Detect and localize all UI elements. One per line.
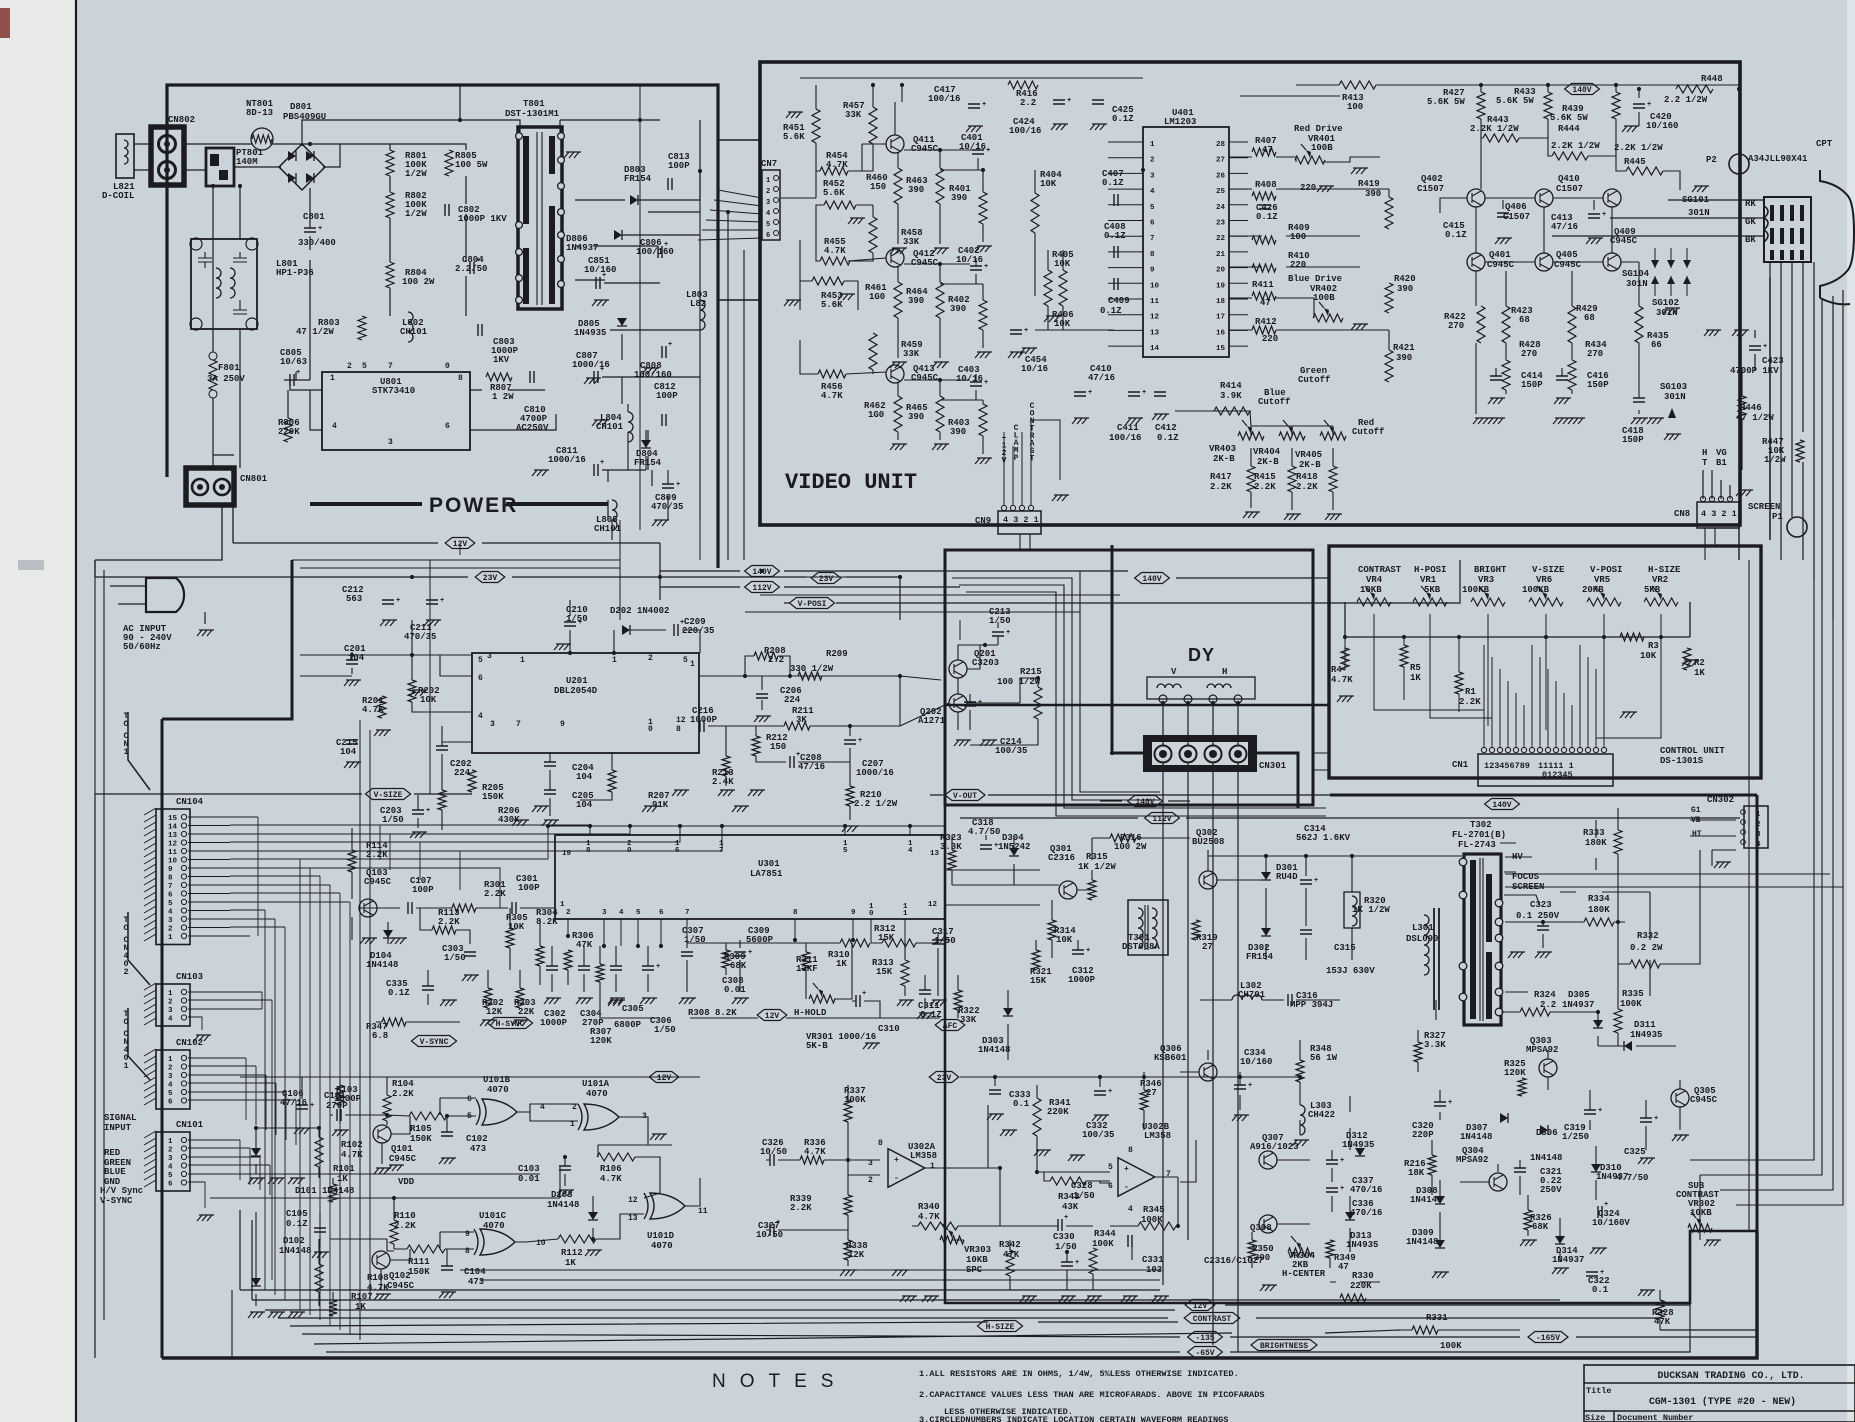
svg-text:140M: 140M — [236, 157, 258, 167]
svg-text:0.1Z: 0.1Z — [1445, 230, 1467, 240]
svg-text:+: + — [986, 147, 990, 155]
svg-text:1/250: 1/250 — [1562, 1132, 1589, 1142]
svg-text:VR6: VR6 — [1536, 575, 1552, 585]
svg-text:1000P: 1000P — [1068, 975, 1096, 985]
svg-text:4: 4 — [168, 1164, 173, 1172]
svg-text:D-COIL: D-COIL — [102, 191, 134, 201]
svg-text:CN802: CN802 — [168, 115, 195, 125]
svg-text:+: + — [318, 225, 322, 233]
svg-text:2.2 1/2W: 2.2 1/2W — [1664, 95, 1708, 105]
svg-text:12V: 12V — [657, 1074, 672, 1083]
svg-text:H-SIZE: H-SIZE — [986, 1323, 1015, 1332]
svg-text:15: 15 — [168, 815, 178, 823]
svg-text:R345: R345 — [1143, 1205, 1165, 1215]
svg-text:C409: C409 — [1108, 296, 1130, 306]
svg-text:C945C: C945C — [911, 258, 939, 268]
svg-text:1: 1 — [719, 840, 724, 848]
svg-text:1: 1 — [123, 1061, 128, 1071]
svg-text:1000P 1KV: 1000P 1KV — [458, 214, 507, 224]
svg-text:6: 6 — [168, 1099, 173, 1107]
svg-text:50/60Hz: 50/60Hz — [123, 642, 161, 652]
svg-text:10/160: 10/160 — [584, 265, 616, 275]
svg-text:5: 5 — [168, 1090, 173, 1098]
svg-text:2.2/50: 2.2/50 — [455, 264, 487, 274]
svg-text:150P: 150P — [1622, 435, 1644, 445]
svg-text:1N4935: 1N4935 — [1342, 1140, 1374, 1150]
svg-text:A1271: A1271 — [918, 716, 946, 726]
svg-text:C412: C412 — [1155, 423, 1177, 433]
svg-text:1/50: 1/50 — [566, 614, 588, 624]
svg-text:47: 47 — [1338, 1262, 1349, 1272]
svg-text:21: 21 — [1216, 251, 1226, 259]
svg-text:R4: R4 — [1331, 665, 1342, 675]
svg-text:1: 1 — [168, 934, 173, 942]
svg-text:330 1/2W: 330 1/2W — [790, 664, 834, 674]
svg-text:43K: 43K — [1062, 1202, 1079, 1212]
svg-text:1N4148: 1N4148 — [547, 1200, 579, 1210]
svg-text:7: 7 — [516, 720, 521, 729]
svg-text:Q102: Q102 — [389, 1271, 411, 1281]
svg-text:H-CENTER: H-CENTER — [1282, 1269, 1326, 1279]
svg-text:R101: R101 — [333, 1164, 355, 1174]
svg-text:Q308: Q308 — [1250, 1223, 1272, 1233]
svg-text:47K: 47K — [1003, 1250, 1020, 1260]
svg-text:1: 1 — [908, 840, 913, 848]
svg-text:4: 4 — [908, 847, 913, 855]
svg-text:MPSA92: MPSA92 — [1456, 1155, 1488, 1165]
svg-text:C330: C330 — [1053, 1232, 1075, 1242]
svg-text:5: 5 — [478, 656, 483, 665]
svg-text:P2: P2 — [1706, 155, 1717, 165]
svg-text:V-SYNC: V-SYNC — [100, 1196, 133, 1206]
svg-text:23V: 23V — [483, 574, 498, 583]
svg-text:U101C: U101C — [479, 1211, 507, 1221]
svg-text:H/V Sync: H/V Sync — [100, 1186, 143, 1196]
svg-text:14: 14 — [168, 824, 178, 832]
svg-text:301N: 301N — [1626, 279, 1648, 289]
svg-text:2: 2 — [766, 188, 770, 196]
svg-text:1K: 1K — [1694, 668, 1705, 678]
svg-text:3K: 3K — [796, 715, 807, 725]
svg-text:140V: 140V — [1135, 798, 1154, 807]
svg-text:P: P — [1014, 454, 1019, 463]
svg-text:390: 390 — [1254, 1253, 1270, 1263]
svg-text:10KB: 10KB — [1690, 1208, 1712, 1218]
svg-text:1: 1 — [168, 1138, 173, 1146]
svg-text:CH422: CH422 — [1308, 1110, 1335, 1120]
svg-text:4.7/50: 4.7/50 — [968, 827, 1000, 837]
svg-text:15: 15 — [1216, 345, 1226, 353]
svg-text:390: 390 — [908, 296, 924, 306]
svg-text:CONTRAST: CONTRAST — [1193, 1315, 1232, 1324]
svg-text:1K: 1K — [565, 1258, 576, 1268]
svg-text:+: + — [1075, 1259, 1079, 1267]
svg-text:Size: Size — [1585, 1413, 1605, 1422]
svg-text:100P: 100P — [668, 161, 690, 171]
svg-text:100/16: 100/16 — [1009, 126, 1041, 136]
svg-text:R340: R340 — [918, 1202, 940, 1212]
svg-text:R1: R1 — [1465, 687, 1476, 697]
svg-text:18K: 18K — [1408, 1168, 1425, 1178]
svg-text:1K: 1K — [337, 1174, 348, 1184]
svg-text:C423: C423 — [1762, 356, 1784, 366]
svg-text:13: 13 — [930, 850, 940, 858]
svg-text:1000P: 1000P — [540, 1018, 568, 1028]
svg-text:HT: HT — [1692, 830, 1702, 839]
svg-text:VR303: VR303 — [964, 1245, 991, 1255]
svg-text:12: 12 — [676, 716, 686, 725]
svg-text:104: 104 — [340, 747, 357, 757]
svg-text:6: 6 — [659, 909, 664, 917]
svg-text:68: 68 — [1584, 313, 1595, 323]
svg-text:+: + — [1086, 947, 1090, 955]
svg-text:0.1Z: 0.1Z — [1104, 231, 1126, 241]
svg-text:10KB: 10KB — [966, 1255, 988, 1265]
svg-text:150K: 150K — [408, 1267, 430, 1277]
svg-text:9: 9 — [168, 866, 173, 874]
svg-text:7: 7 — [1166, 1170, 1171, 1179]
svg-text:V-POSI: V-POSI — [1590, 565, 1622, 575]
svg-text:8: 8 — [458, 374, 463, 383]
svg-text:VR1: VR1 — [1420, 575, 1437, 585]
svg-text:KSB601: KSB601 — [1154, 1053, 1187, 1063]
svg-text:330/400: 330/400 — [298, 238, 336, 248]
svg-text:Title: Title — [1586, 1386, 1612, 1396]
svg-text:+: + — [1340, 1185, 1344, 1193]
svg-text:150K: 150K — [410, 1134, 432, 1144]
svg-text:1N4937: 1N4937 — [1552, 1255, 1584, 1265]
svg-text:CN301: CN301 — [1259, 761, 1287, 771]
svg-text:4.7K: 4.7K — [1331, 675, 1353, 685]
svg-text:CN101: CN101 — [176, 1120, 204, 1130]
svg-text:150P: 150P — [1521, 380, 1543, 390]
svg-text:4: 4 — [619, 909, 624, 917]
svg-text:1/50: 1/50 — [654, 1025, 676, 1035]
svg-text:8: 8 — [1150, 251, 1155, 259]
svg-text:0.01: 0.01 — [724, 985, 746, 995]
svg-text:220: 220 — [1290, 260, 1306, 270]
svg-text:4070: 4070 — [483, 1221, 505, 1231]
svg-text:13: 13 — [1150, 329, 1160, 337]
svg-text:12K: 12K — [848, 1250, 865, 1260]
svg-text:C945C: C945C — [911, 144, 939, 154]
svg-text:2.2K 1/2W: 2.2K 1/2W — [1470, 124, 1519, 134]
svg-text:4: 4 — [478, 712, 483, 721]
svg-text:CN9: CN9 — [975, 516, 991, 526]
svg-text:1: 1 — [168, 1056, 173, 1064]
svg-text:D306: D306 — [1536, 1128, 1558, 1138]
svg-text:G1: G1 — [1691, 806, 1701, 815]
svg-text:5: 5 — [1108, 1163, 1113, 1172]
svg-text:+: + — [894, 1156, 899, 1165]
svg-text:R110: R110 — [394, 1211, 416, 1221]
svg-text:R408: R408 — [1255, 180, 1277, 190]
svg-text:U301: U301 — [758, 859, 780, 869]
svg-text:12V: 12V — [1193, 1302, 1208, 1311]
svg-text:CH701: CH701 — [1238, 990, 1266, 1000]
svg-text:R445: R445 — [1624, 157, 1646, 167]
svg-text:RU4D: RU4D — [1276, 872, 1298, 882]
svg-text:5: 5 — [683, 656, 688, 665]
svg-text:+: + — [858, 737, 862, 745]
svg-text:1/50: 1/50 — [382, 815, 404, 825]
svg-text:+: + — [656, 963, 660, 971]
svg-text:CPT: CPT — [1816, 139, 1833, 149]
svg-text:+: + — [1604, 1201, 1608, 1209]
svg-text:140V: 140V — [1572, 86, 1591, 95]
svg-text:+: + — [668, 341, 672, 349]
svg-text:SIGNAL: SIGNAL — [104, 1113, 136, 1123]
svg-text:+: + — [1108, 1088, 1112, 1096]
svg-text:C2316: C2316 — [1048, 853, 1075, 863]
svg-text:R446: R446 — [1740, 403, 1762, 413]
svg-text:301N: 301N — [1664, 392, 1686, 402]
svg-text:47/16: 47/16 — [1551, 222, 1578, 232]
svg-text:BU2508: BU2508 — [1192, 837, 1224, 847]
svg-text:33K: 33K — [903, 349, 920, 359]
svg-text:2K-B: 2K-B — [1299, 460, 1321, 470]
svg-text:R105: R105 — [410, 1124, 432, 1134]
svg-text:Red Drive: Red Drive — [1294, 124, 1343, 134]
svg-text:10K: 10K — [1054, 259, 1071, 269]
svg-text:3: 3 — [168, 1073, 173, 1081]
svg-text:4.7K: 4.7K — [600, 1174, 622, 1184]
svg-text:6800P: 6800P — [614, 1020, 642, 1030]
svg-text:F801: F801 — [218, 363, 240, 373]
svg-text:+: + — [310, 1102, 314, 1110]
svg-text:6: 6 — [168, 1181, 173, 1189]
svg-text:C945C: C945C — [911, 373, 939, 383]
svg-text:MPP 394J: MPP 394J — [1290, 1000, 1333, 1010]
svg-text:10/50: 10/50 — [760, 1147, 787, 1157]
svg-text:4: 4 — [168, 909, 173, 917]
svg-text:7: 7 — [388, 362, 393, 371]
svg-text:23V: 23V — [819, 575, 834, 584]
svg-text:+: + — [1067, 97, 1071, 105]
svg-text:R334: R334 — [1588, 894, 1610, 904]
svg-text:Q406: Q406 — [1505, 202, 1527, 212]
svg-text:0: 0 — [445, 362, 450, 371]
svg-text:10/160: 10/160 — [1240, 1057, 1272, 1067]
svg-text:390: 390 — [1365, 189, 1381, 199]
svg-text:2: 2 — [347, 362, 352, 371]
svg-text:CN102: CN102 — [176, 1038, 203, 1048]
svg-text:10/160: 10/160 — [1646, 121, 1678, 131]
svg-text:10/16: 10/16 — [1021, 364, 1048, 374]
svg-text:23V: 23V — [937, 1074, 952, 1083]
svg-text:R308 8.2K: R308 8.2K — [688, 1008, 737, 1018]
svg-text:VR3: VR3 — [1478, 575, 1494, 585]
svg-text:11: 11 — [1150, 298, 1160, 306]
svg-text:4.7K: 4.7K — [821, 391, 843, 401]
svg-text:LM1203: LM1203 — [1164, 117, 1196, 127]
svg-text:CN801: CN801 — [240, 474, 268, 484]
svg-text:5.6K: 5.6K — [783, 132, 805, 142]
svg-text:R420: R420 — [1394, 274, 1416, 284]
svg-text:100K: 100K — [1440, 1341, 1462, 1351]
svg-text:4: 4 — [766, 210, 770, 218]
svg-text:4: 4 — [168, 1016, 173, 1024]
svg-text:+: + — [1314, 877, 1318, 885]
svg-text:1N4148: 1N4148 — [1460, 1132, 1492, 1142]
svg-text:1K 1/2W: 1K 1/2W — [1078, 862, 1116, 872]
svg-text:P1: P1 — [1772, 512, 1783, 522]
svg-text:27: 27 — [1216, 157, 1225, 165]
svg-text:2: 2 — [648, 654, 653, 663]
svg-text:U201: U201 — [566, 676, 588, 686]
svg-text:R421: R421 — [1393, 343, 1415, 353]
svg-text:+: + — [396, 597, 400, 605]
svg-text:120K: 120K — [590, 1036, 612, 1046]
svg-text:100K: 100K — [1620, 999, 1642, 1009]
svg-text:V-POSI: V-POSI — [798, 600, 827, 609]
svg-text:1/50: 1/50 — [934, 936, 956, 946]
svg-text:R215: R215 — [1020, 667, 1042, 677]
svg-text:V-SIZE: V-SIZE — [374, 791, 403, 800]
svg-text:H: H — [1702, 448, 1707, 458]
svg-text:224: 224 — [784, 695, 801, 705]
svg-text:5K-B: 5K-B — [806, 1041, 828, 1051]
svg-text:10/63: 10/63 — [280, 357, 307, 367]
svg-text:LM358: LM358 — [910, 1151, 937, 1161]
svg-text:C801: C801 — [303, 212, 325, 222]
svg-text:2: 2 — [1150, 157, 1155, 165]
svg-text:27: 27 — [1146, 1088, 1157, 1098]
svg-text:10: 10 — [168, 858, 178, 866]
svg-text:390: 390 — [1397, 284, 1413, 294]
svg-text:100K: 100K — [1092, 1239, 1114, 1249]
svg-text:T302: T302 — [1470, 820, 1492, 830]
svg-text:150: 150 — [870, 182, 886, 192]
svg-text:68K: 68K — [1532, 1222, 1549, 1232]
svg-text:0: 0 — [869, 910, 874, 918]
svg-text:1: 1 — [690, 660, 695, 669]
svg-text:VG: VG — [1716, 448, 1727, 458]
svg-text:9: 9 — [1150, 267, 1155, 275]
svg-text:104: 104 — [576, 772, 593, 782]
svg-text:1N4937: 1N4937 — [566, 243, 598, 253]
svg-text:9: 9 — [851, 909, 856, 917]
svg-text:+: + — [1124, 1165, 1129, 1174]
svg-text:VDD: VDD — [398, 1177, 415, 1187]
svg-text:STK73410: STK73410 — [372, 386, 415, 396]
svg-text:4070: 4070 — [487, 1085, 509, 1095]
svg-text:11: 11 — [698, 1207, 708, 1216]
svg-text:10K: 10K — [1054, 319, 1071, 329]
svg-text:LM358: LM358 — [1144, 1131, 1171, 1141]
svg-text:SG104: SG104 — [1622, 269, 1650, 279]
svg-text:R415: R415 — [1254, 472, 1276, 482]
svg-text:1/2W: 1/2W — [1764, 455, 1786, 465]
svg-text:1G0: 1G0 — [869, 292, 885, 302]
svg-text:+: + — [1654, 1115, 1658, 1123]
svg-text:DY: DY — [1188, 645, 1215, 665]
svg-text:+: + — [984, 379, 988, 387]
svg-text:012345: 012345 — [1542, 770, 1573, 780]
svg-text:8: 8 — [878, 1139, 883, 1148]
svg-text:68K: 68K — [730, 961, 747, 971]
svg-text:CN1: CN1 — [1452, 760, 1469, 770]
svg-text:+: + — [1064, 1214, 1068, 1222]
svg-text:180K: 180K — [1585, 838, 1607, 848]
svg-text:FR154: FR154 — [1246, 952, 1274, 962]
svg-text:R104: R104 — [392, 1079, 414, 1089]
svg-text:CN104: CN104 — [176, 797, 204, 807]
svg-text:4.7K: 4.7K — [362, 705, 384, 715]
svg-text:26: 26 — [1216, 172, 1226, 180]
svg-text:1/2W: 1/2W — [405, 169, 427, 179]
svg-text:390: 390 — [908, 412, 924, 422]
svg-text:270: 270 — [1521, 349, 1537, 359]
svg-text:100B: 100B — [1313, 293, 1335, 303]
svg-text:2.2K: 2.2K — [1254, 482, 1276, 492]
svg-text:1.ALL RESISTORS ARE IN OHMS, 1: 1.ALL RESISTORS ARE IN OHMS, 1/4W, 5%LES… — [919, 1369, 1239, 1379]
svg-text:VR4: VR4 — [1366, 575, 1383, 585]
svg-text:13: 13 — [628, 1214, 638, 1223]
svg-text:2.2K: 2.2K — [394, 1221, 416, 1231]
svg-text:C323: C323 — [1530, 900, 1552, 910]
svg-text:153J 630V: 153J 630V — [1326, 966, 1375, 976]
svg-text:100 5W: 100 5W — [455, 160, 488, 170]
svg-text:5: 5 — [766, 221, 770, 229]
svg-text:C1507: C1507 — [1556, 184, 1583, 194]
svg-text:68: 68 — [1519, 315, 1530, 325]
svg-text:6: 6 — [445, 422, 450, 431]
svg-text:3: 3 — [388, 438, 393, 447]
svg-text:150P: 150P — [1587, 380, 1609, 390]
svg-text:2.2K: 2.2K — [438, 917, 460, 927]
svg-text:11: 11 — [168, 849, 178, 857]
svg-text:47: 47 — [1262, 145, 1273, 155]
svg-text:VR403: VR403 — [1209, 444, 1236, 454]
svg-text:3.CIRCLEDNUMBERS INDICATE LOCA: 3.CIRCLEDNUMBERS INDICATE LOCATION CERTA… — [919, 1415, 1228, 1422]
svg-text:12: 12 — [928, 901, 938, 909]
svg-text:150K: 150K — [482, 792, 504, 802]
svg-text:8: 8 — [793, 909, 798, 917]
svg-text:C310: C310 — [878, 1024, 900, 1034]
svg-text:100P: 100P — [412, 885, 434, 895]
svg-text:C945C: C945C — [1610, 236, 1638, 246]
svg-text:1N4937: 1N4937 — [1562, 1000, 1594, 1010]
svg-text:2K-B: 2K-B — [1213, 454, 1235, 464]
svg-text:D102: D102 — [283, 1236, 305, 1246]
svg-text:1000/16: 1000/16 — [572, 360, 610, 370]
svg-text:Q401: Q401 — [1489, 250, 1511, 260]
svg-text:220: 220 — [1300, 183, 1316, 193]
svg-text:1/50: 1/50 — [989, 616, 1011, 626]
svg-text:220: 220 — [1262, 334, 1278, 344]
svg-text:R418: R418 — [1296, 472, 1318, 482]
svg-text:0.01: 0.01 — [518, 1174, 540, 1184]
svg-text:1000P: 1000P — [690, 715, 718, 725]
svg-text:220P: 220P — [1412, 1130, 1434, 1140]
svg-text:HP1-P36: HP1-P36 — [276, 268, 314, 278]
svg-text:22: 22 — [1216, 235, 1226, 243]
svg-text:140V: 140V — [1142, 575, 1161, 584]
svg-text:1: 1 — [560, 901, 565, 909]
svg-text:+: + — [1006, 629, 1010, 637]
svg-text:R324: R324 — [1534, 990, 1556, 1000]
svg-text:8: 8 — [465, 1247, 470, 1256]
svg-text:3: 3 — [168, 1155, 173, 1163]
svg-text:CONTROL UNIT: CONTROL UNIT — [1660, 746, 1725, 756]
svg-text:47/16: 47/16 — [798, 762, 825, 772]
svg-text:R411: R411 — [1252, 280, 1274, 290]
svg-text:C945C: C945C — [364, 877, 392, 887]
svg-text:1: 1 — [612, 656, 617, 665]
svg-text:1: 1 — [903, 910, 908, 918]
svg-text:C945C: C945C — [1690, 1095, 1718, 1105]
